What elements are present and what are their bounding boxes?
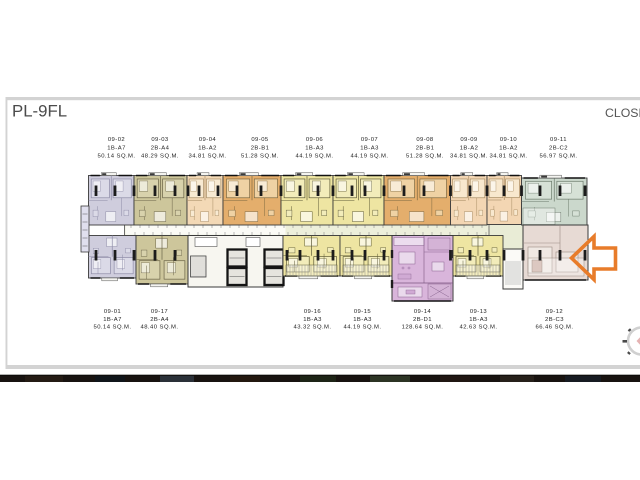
svg-text:2B-B1: 2B-B1 (416, 146, 435, 152)
svg-text:1B-A3: 1B-A3 (303, 317, 322, 323)
svg-text:09-10: 09-10 (500, 137, 518, 143)
svg-text:2B-A4: 2B-A4 (151, 146, 170, 152)
svg-text:09-14: 09-14 (414, 309, 432, 315)
svg-text:128.64 SQ.M.: 128.64 SQ.M. (402, 325, 444, 331)
svg-text:PL-9FL: PL-9FL (12, 102, 67, 121)
svg-text:1B-A3: 1B-A3 (353, 317, 372, 323)
svg-text:34.81 SQ.M.: 34.81 SQ.M. (450, 154, 488, 160)
svg-text:1B-A7: 1B-A7 (107, 146, 126, 152)
svg-text:09-16: 09-16 (304, 309, 322, 315)
svg-text:51.28 SQ.M.: 51.28 SQ.M. (406, 154, 444, 160)
svg-text:34.81 SQ.M.: 34.81 SQ.M. (489, 154, 527, 160)
svg-text:2B-A4: 2B-A4 (150, 317, 169, 323)
svg-text:48.29 SQ.M.: 48.29 SQ.M. (141, 154, 179, 160)
svg-text:09-02: 09-02 (108, 137, 125, 143)
svg-text:2B-B1: 2B-B1 (251, 146, 270, 152)
svg-text:09-11: 09-11 (550, 137, 567, 143)
svg-text:09-08: 09-08 (416, 137, 434, 143)
svg-text:50.14 SQ.M.: 50.14 SQ.M. (97, 154, 135, 160)
svg-text:1B-A2: 1B-A2 (460, 146, 479, 152)
svg-text:CLOSE: CLOSE (605, 106, 640, 120)
svg-text:1B-A3: 1B-A3 (469, 317, 488, 323)
svg-text:09-06: 09-06 (306, 137, 324, 143)
svg-text:1B-A3: 1B-A3 (305, 146, 324, 152)
svg-text:09-01: 09-01 (104, 309, 121, 315)
svg-text:1B-A2: 1B-A2 (499, 146, 518, 152)
svg-text:44.19 SQ.M.: 44.19 SQ.M. (295, 154, 333, 160)
svg-text:09-04: 09-04 (199, 137, 217, 143)
svg-text:09-13: 09-13 (470, 309, 488, 315)
svg-text:66.46 SQ.M.: 66.46 SQ.M. (535, 325, 573, 331)
svg-text:44.19 SQ.M.: 44.19 SQ.M. (343, 325, 381, 331)
svg-text:09-17: 09-17 (151, 309, 168, 315)
svg-text:1B-A2: 1B-A2 (198, 146, 217, 152)
svg-text:51.28 SQ.M.: 51.28 SQ.M. (241, 154, 279, 160)
svg-text:2B-C3: 2B-C3 (545, 317, 564, 323)
svg-text:43.32 SQ.M.: 43.32 SQ.M. (293, 325, 331, 331)
svg-text:48.40 SQ.M.: 48.40 SQ.M. (140, 325, 178, 331)
svg-text:1B-A3: 1B-A3 (360, 146, 379, 152)
svg-text:1B-A7: 1B-A7 (103, 317, 122, 323)
svg-text:09-03: 09-03 (151, 137, 169, 143)
svg-text:2B-C2: 2B-C2 (549, 146, 568, 152)
svg-text:44.19 SQ.M.: 44.19 SQ.M. (350, 154, 388, 160)
svg-text:50.14 SQ.M.: 50.14 SQ.M. (93, 325, 131, 331)
svg-text:42.63 SQ.M.: 42.63 SQ.M. (459, 325, 497, 331)
svg-text:2B-D1: 2B-D1 (413, 317, 432, 323)
svg-text:56.97 SQ.M.: 56.97 SQ.M. (539, 154, 577, 160)
svg-text:34.81 SQ.M.: 34.81 SQ.M. (188, 154, 226, 160)
svg-text:09-12: 09-12 (546, 309, 563, 315)
svg-text:09-07: 09-07 (361, 137, 378, 143)
svg-text:09-15: 09-15 (354, 309, 372, 315)
svg-text:09-05: 09-05 (251, 137, 269, 143)
svg-text:09-09: 09-09 (460, 137, 477, 143)
